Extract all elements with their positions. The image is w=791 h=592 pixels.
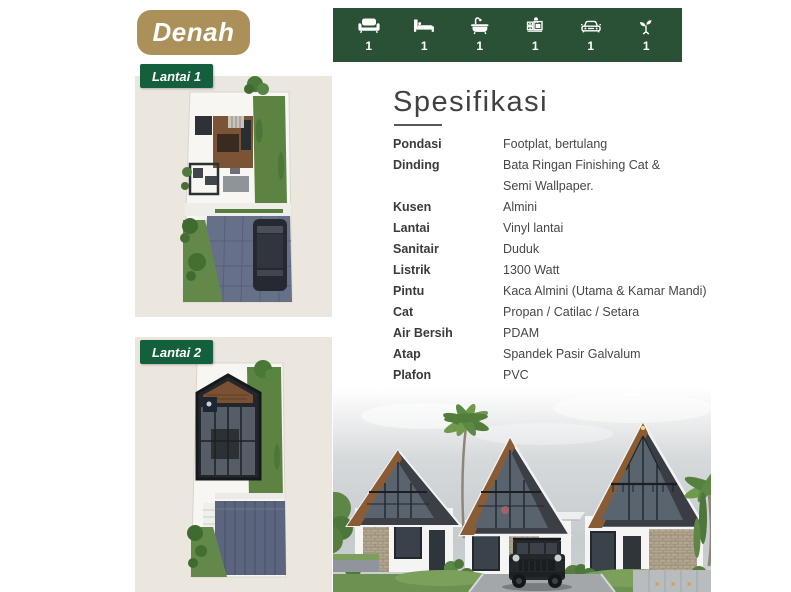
spec-row: Dinding Bata Ringan Finishing Cat & Semi…	[393, 155, 703, 197]
spec-label: Cat	[393, 302, 503, 323]
spec-value: Spandek Pasir Galvalum	[503, 344, 703, 365]
amenity-kitchen: 1	[512, 14, 558, 53]
spec-row: Listrik 1300 Watt	[393, 260, 703, 281]
lantai-1-badge: Lantai 1	[140, 64, 213, 88]
spec-value: Vinyl lantai	[503, 218, 703, 239]
bathtub-icon	[467, 14, 493, 38]
spec-row: Kusen Almini	[393, 197, 703, 218]
amenity-count: 1	[532, 39, 539, 53]
spec-row: Cat Propan / Catilac / Setara	[393, 302, 703, 323]
page-title: Denah	[153, 17, 235, 48]
floorplan-lantai-1-panel	[135, 76, 332, 317]
spec-row: Air Bersih PDAM	[393, 323, 703, 344]
spec-value: PDAM	[503, 323, 703, 344]
spec-heading: Spesifikasi	[393, 86, 548, 119]
spec-value: Duduk	[503, 239, 703, 260]
amenity-bathtub: 1	[457, 14, 503, 53]
amenity-count: 1	[643, 39, 650, 53]
spec-value: Kaca Almini (Utama & Kamar Mandi)	[503, 281, 707, 302]
lantai-2-label: Lantai 2	[152, 345, 201, 360]
spec-value: Propan / Catilac / Setara	[503, 302, 703, 323]
floorplan-lantai-2-panel	[135, 337, 332, 592]
spec-label: Sanitair	[393, 239, 503, 260]
amenity-count: 1	[365, 39, 372, 53]
amenity-count: 1	[587, 39, 594, 53]
amenity-sofa: 1	[346, 14, 392, 53]
spec-row: Pondasi Footplat, bertulang	[393, 134, 703, 155]
amenities-bar: 1 1 1	[333, 8, 682, 62]
spec-label: Pintu	[393, 281, 503, 302]
car-icon	[578, 14, 604, 38]
brochure-page: Denah 1 1	[0, 0, 791, 592]
amenity-count: 1	[476, 39, 483, 53]
lantai-2-badge: Lantai 2	[140, 340, 213, 364]
spec-row: Pintu Kaca Almini (Utama & Kamar Mandi)	[393, 281, 703, 302]
amenity-carport: 1	[568, 14, 614, 53]
amenity-count: 1	[421, 39, 428, 53]
spec-table: Pondasi Footplat, bertulang Dinding Bata…	[393, 134, 703, 386]
sofa-icon	[356, 14, 382, 38]
amenity-bed: 1	[401, 14, 447, 53]
house-render-panel	[333, 388, 711, 592]
lantai-1-label: Lantai 1	[152, 69, 201, 84]
lantai-1-floorplan-image	[135, 76, 332, 317]
bed-icon	[411, 14, 437, 38]
spec-label: Listrik	[393, 260, 503, 281]
spec-value: Footplat, bertulang	[503, 134, 703, 155]
house-render-image	[333, 388, 711, 592]
spec-value: 1300 Watt	[503, 260, 703, 281]
spec-label: Lantai	[393, 218, 503, 239]
spec-row: Lantai Vinyl lantai	[393, 218, 703, 239]
spec-label: Atap	[393, 344, 503, 365]
spec-row: Atap Spandek Pasir Galvalum	[393, 344, 703, 365]
amenity-garden: 1	[623, 14, 669, 53]
spec-value: Almini	[503, 197, 703, 218]
spec-label: Dinding	[393, 155, 503, 197]
spec-label: Air Bersih	[393, 323, 503, 344]
spec-value: PVC	[503, 365, 703, 386]
spec-label: Plafon	[393, 365, 503, 386]
spec-heading-underline	[394, 124, 442, 126]
spec-row: Sanitair Duduk	[393, 239, 703, 260]
spec-value: Bata Ringan Finishing Cat & Semi Wallpap…	[503, 155, 703, 197]
spec-row: Plafon PVC	[393, 365, 703, 386]
page-title-badge: Denah	[137, 10, 250, 55]
spec-label: Pondasi	[393, 134, 503, 155]
lantai-2-floorplan-image	[135, 337, 332, 592]
spec-label: Kusen	[393, 197, 503, 218]
kitchen-icon	[522, 14, 548, 38]
plant-icon	[633, 14, 659, 38]
